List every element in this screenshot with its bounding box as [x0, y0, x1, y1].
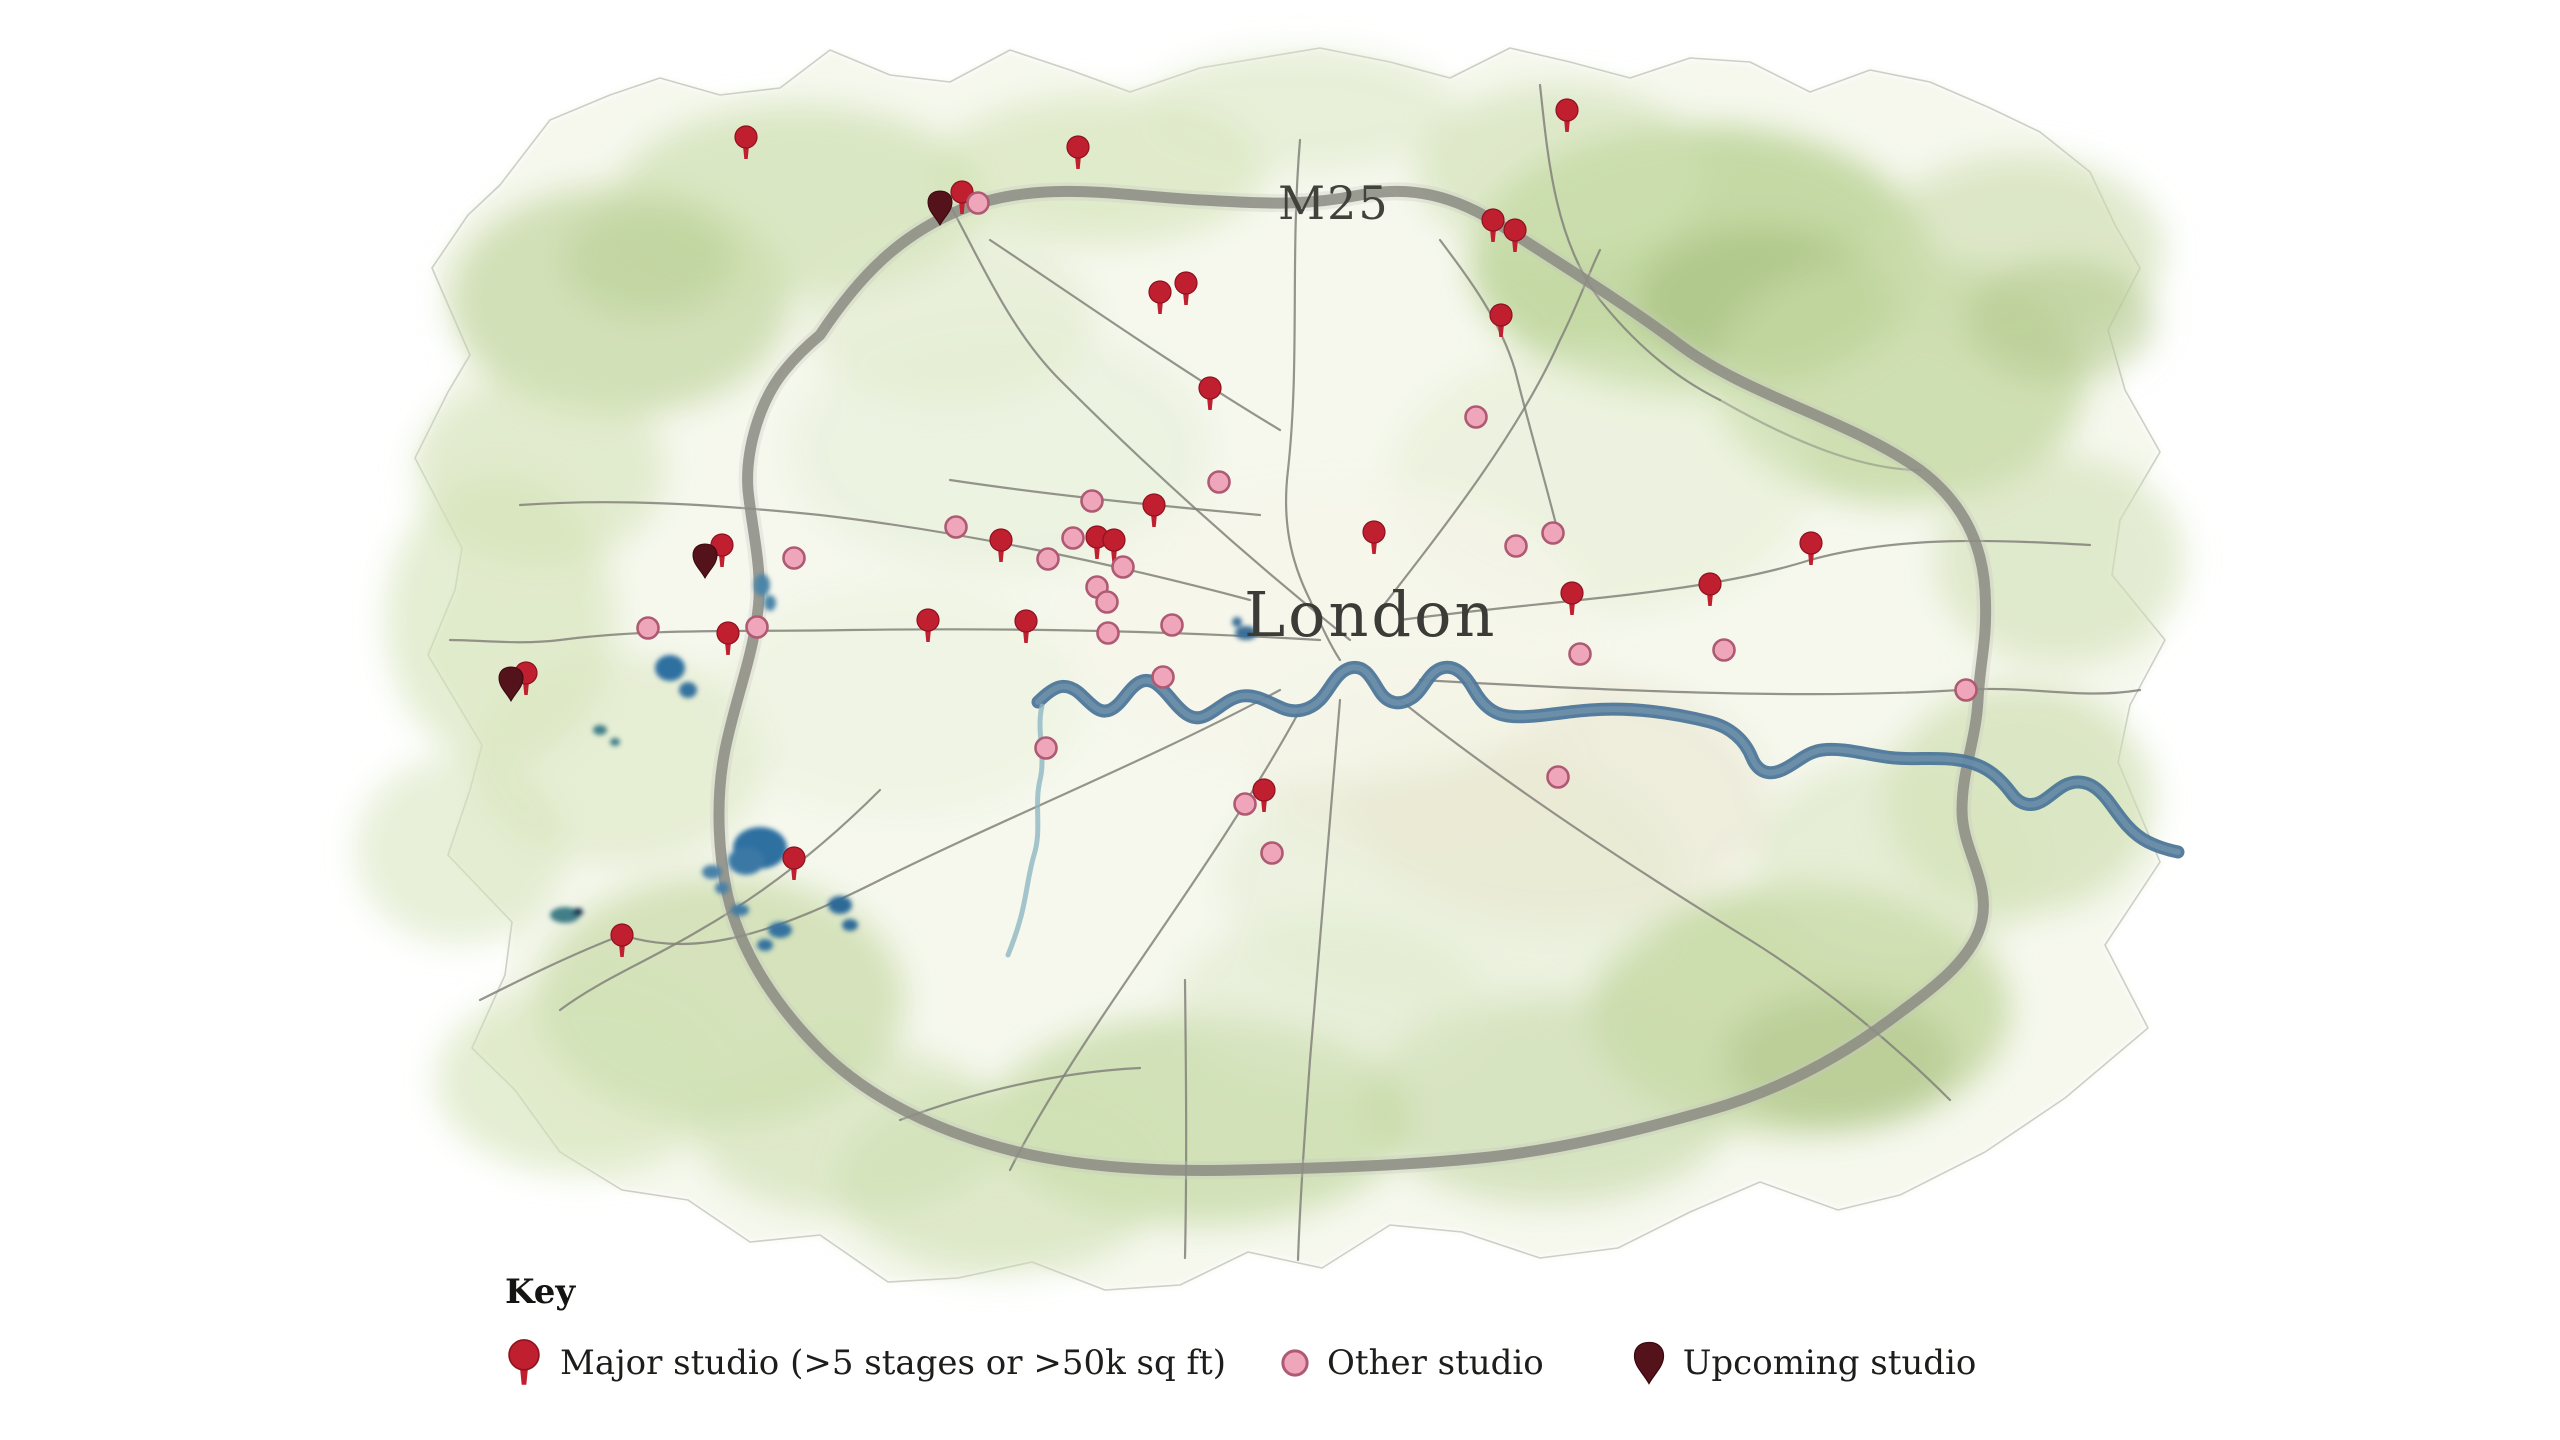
map-pin-major [914, 608, 942, 648]
map-pin-other [1095, 620, 1121, 650]
map-pin-other [1159, 612, 1185, 642]
legend-label-upcoming: Upcoming studio [1683, 1343, 1977, 1383]
map-pin-other [1540, 520, 1566, 550]
map-pin-upcoming [926, 189, 954, 231]
map-pin-other [635, 615, 661, 645]
legend-heading: Key [505, 1272, 1976, 1312]
map-pin-other [1711, 637, 1737, 667]
map-pin-other [943, 514, 969, 544]
map-pin-other [1232, 791, 1258, 821]
legend-item-upcoming: Upcoming studio [1632, 1340, 1977, 1386]
map-pin-upcoming [497, 665, 525, 707]
map-pin-other [744, 614, 770, 644]
upcoming-studio-pin-icon [1632, 1340, 1666, 1386]
map-pin-other [1259, 840, 1285, 870]
map-pin-other [1953, 677, 1979, 707]
map-pin-major [608, 923, 636, 963]
map-pin-other [781, 545, 807, 575]
map-pin-major [780, 846, 808, 886]
map-pin-other [1094, 589, 1120, 619]
map-pin-major [1146, 280, 1174, 320]
legend-row: Major studio (>5 stages or >50k sq ft) O… [505, 1338, 1976, 1388]
major-studio-pin-icon [505, 1338, 543, 1388]
map-pin-major [1696, 572, 1724, 612]
map-pin-other [1463, 404, 1489, 434]
other-studio-dot-icon [1280, 1348, 1310, 1378]
legend: Key Major studio (>5 stages or >50k sq f… [505, 1272, 1976, 1388]
map-pin-major [1196, 376, 1224, 416]
map-pin-major [1797, 531, 1825, 571]
map-pin-major [1064, 135, 1092, 175]
map-pin-other [1110, 554, 1136, 584]
map-pin-other [1079, 488, 1105, 518]
map-pin-other [1060, 525, 1086, 555]
map-pin-major [1360, 520, 1388, 560]
pin-layer [0, 0, 2560, 1440]
map-pin-upcoming [691, 542, 719, 584]
map-pin-other [1567, 641, 1593, 671]
map-pin-major [732, 125, 760, 165]
map-pin-major [1487, 303, 1515, 343]
map-pin-major [1140, 493, 1168, 533]
map-pin-other [1150, 664, 1176, 694]
map-pin-major [1012, 609, 1040, 649]
map-pin-other [1035, 546, 1061, 576]
map-pin-major [1553, 98, 1581, 138]
map-pin-major [714, 621, 742, 661]
legend-item-other: Other studio [1280, 1343, 1544, 1383]
map-pin-other [1206, 469, 1232, 499]
legend-label-major: Major studio (>5 stages or >50k sq ft) [560, 1343, 1226, 1383]
map-pin-other [1503, 533, 1529, 563]
london-studios-map-page: London M25 [0, 0, 2560, 1440]
map-pin-major [1558, 581, 1586, 621]
legend-label-other: Other studio [1327, 1343, 1544, 1383]
map-pin-major [987, 528, 1015, 568]
map-pin-major [1172, 271, 1200, 311]
map-pin-other [1545, 764, 1571, 794]
map-pin-major [1501, 218, 1529, 258]
legend-item-major: Major studio (>5 stages or >50k sq ft) [505, 1338, 1226, 1388]
map-pin-other [965, 190, 991, 220]
map-pin-other [1033, 735, 1059, 765]
